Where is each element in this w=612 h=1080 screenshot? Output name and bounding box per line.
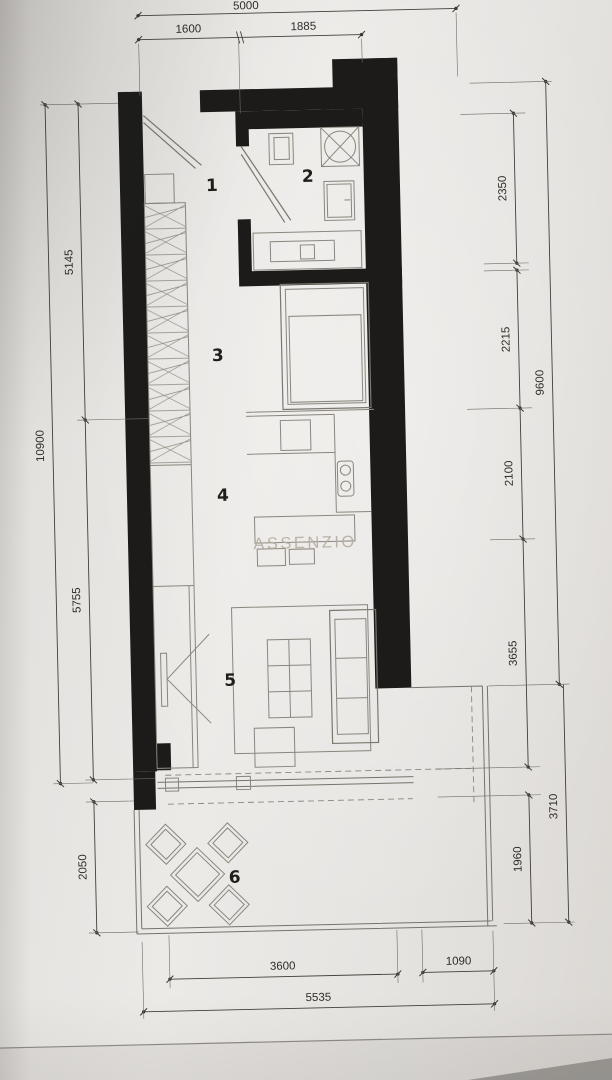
- dim-line-top-overall: [138, 8, 456, 15]
- ottoman: [254, 727, 295, 767]
- dim-left-upper: 5145: [63, 249, 76, 275]
- room-number-1: 1: [206, 176, 218, 196]
- furniture: [119, 124, 497, 934]
- kitchen-sink-icon: [337, 461, 354, 496]
- dim-bottom-overall: 5535: [305, 992, 331, 1005]
- kitchen-counter: [246, 409, 376, 514]
- side-table: [280, 420, 311, 451]
- dim-line-right-s5: [529, 795, 532, 923]
- terrace-edge-dashed: [168, 799, 413, 805]
- living-room-furniture: [232, 604, 380, 767]
- terrace-table-icon: [170, 847, 225, 902]
- overhang-dashed: [163, 686, 474, 809]
- bathroom-fixtures: [251, 127, 362, 270]
- dim-line-bottom-overall: [144, 1004, 495, 1012]
- bed: [280, 283, 371, 410]
- dimension-lines: 5000 1600 1885 10900 5145 5755 2050 2350…: [25, 0, 577, 1021]
- dim-bottom-right-segment: 1090: [446, 955, 472, 968]
- floorplan-photo: 1 2 3 4 5 6 ASSENZIO 5000 1600 1885 1090…: [0, 0, 612, 1080]
- room-number-5: 5: [224, 671, 236, 691]
- dim-right-s4: 3655: [507, 640, 520, 666]
- wall-bathroom-partition-upper: [235, 111, 249, 146]
- dim-left-terrace: 2050: [77, 854, 90, 880]
- bathroom-door-icon: [241, 145, 291, 223]
- dim-top-left-segment: 1600: [175, 23, 201, 36]
- dim-line-top-segments: [139, 35, 362, 40]
- terrace-chair-icon: [209, 884, 250, 925]
- wall-top-bathroom: [247, 109, 362, 130]
- dim-right-s5: 1960: [512, 846, 525, 872]
- dim-line-left-overall: [45, 105, 60, 784]
- dim-line-left-middle: [85, 420, 93, 780]
- living-door-panel: [161, 653, 168, 706]
- dim-bottom-main: 3600: [270, 960, 296, 973]
- wall-left-lower: [133, 771, 156, 809]
- dim-line-bottom-right: [423, 971, 494, 973]
- dim-left-middle: 5755: [71, 587, 84, 613]
- dim-line-left-upper: [78, 104, 85, 420]
- room-number-6: 6: [228, 868, 240, 888]
- boiler-cabinet-icon: [324, 181, 355, 221]
- coffee-table: [267, 639, 312, 718]
- dim-right-overall-upper: 9600: [534, 370, 547, 396]
- room-number-3: 3: [212, 346, 224, 366]
- agency-watermark: ASSENZIO: [253, 533, 357, 553]
- room-number-2: 2: [302, 167, 314, 187]
- sliding-door-frame: [165, 778, 178, 791]
- dim-right-overall-lower: 3710: [548, 794, 561, 820]
- shoe-cabinet: [145, 174, 175, 204]
- terrace-chair-icon: [147, 886, 188, 927]
- dim-right-s2: 2215: [500, 326, 513, 352]
- dim-right-s1: 2350: [497, 176, 510, 202]
- wardrobe-shelves: [150, 465, 198, 769]
- living-door-swing-icon: [166, 634, 211, 724]
- dim-line-right-s4: [523, 539, 528, 767]
- shower-icon: [321, 127, 360, 167]
- dim-top-right-segment: 1885: [290, 21, 316, 34]
- dim-line-right-overall-lower: [563, 684, 568, 922]
- vanity-sink-icon: [253, 231, 362, 270]
- rug: [232, 605, 371, 754]
- dim-top-overall: 5000: [233, 0, 259, 13]
- terrace-railing: [131, 686, 496, 934]
- wardrobe-hatch: [144, 203, 191, 466]
- terrace-chair-icon: [207, 822, 248, 863]
- toilet-icon: [274, 137, 289, 159]
- wall-left-stub: [157, 743, 172, 770]
- dim-line-right-s2: [517, 270, 520, 408]
- dim-line-left-terrace: [94, 802, 97, 933]
- wall-right: [361, 58, 411, 689]
- sliding-glass-door: [157, 777, 413, 789]
- terrace: [131, 686, 496, 934]
- dim-line-right-s3: [520, 408, 523, 539]
- entrance-door-icon: [143, 114, 201, 169]
- dim-right-s3: 2100: [503, 460, 516, 486]
- room-number-4: 4: [217, 486, 229, 506]
- dim-line-right-overall-upper: [546, 81, 560, 684]
- dim-line-right-s1: [513, 113, 516, 263]
- dim-left-overall: 10900: [34, 430, 47, 462]
- floorplan-drawing: 1 2 3 4 5 6 ASSENZIO 5000 1600 1885 1090…: [0, 0, 612, 1080]
- terrace-chair-icon: [145, 824, 186, 865]
- dim-line-bottom-main: [170, 974, 398, 979]
- sofa: [330, 609, 379, 743]
- wall-bathroom-partition-lower: [238, 219, 252, 275]
- sliding-door-frame: [236, 776, 250, 789]
